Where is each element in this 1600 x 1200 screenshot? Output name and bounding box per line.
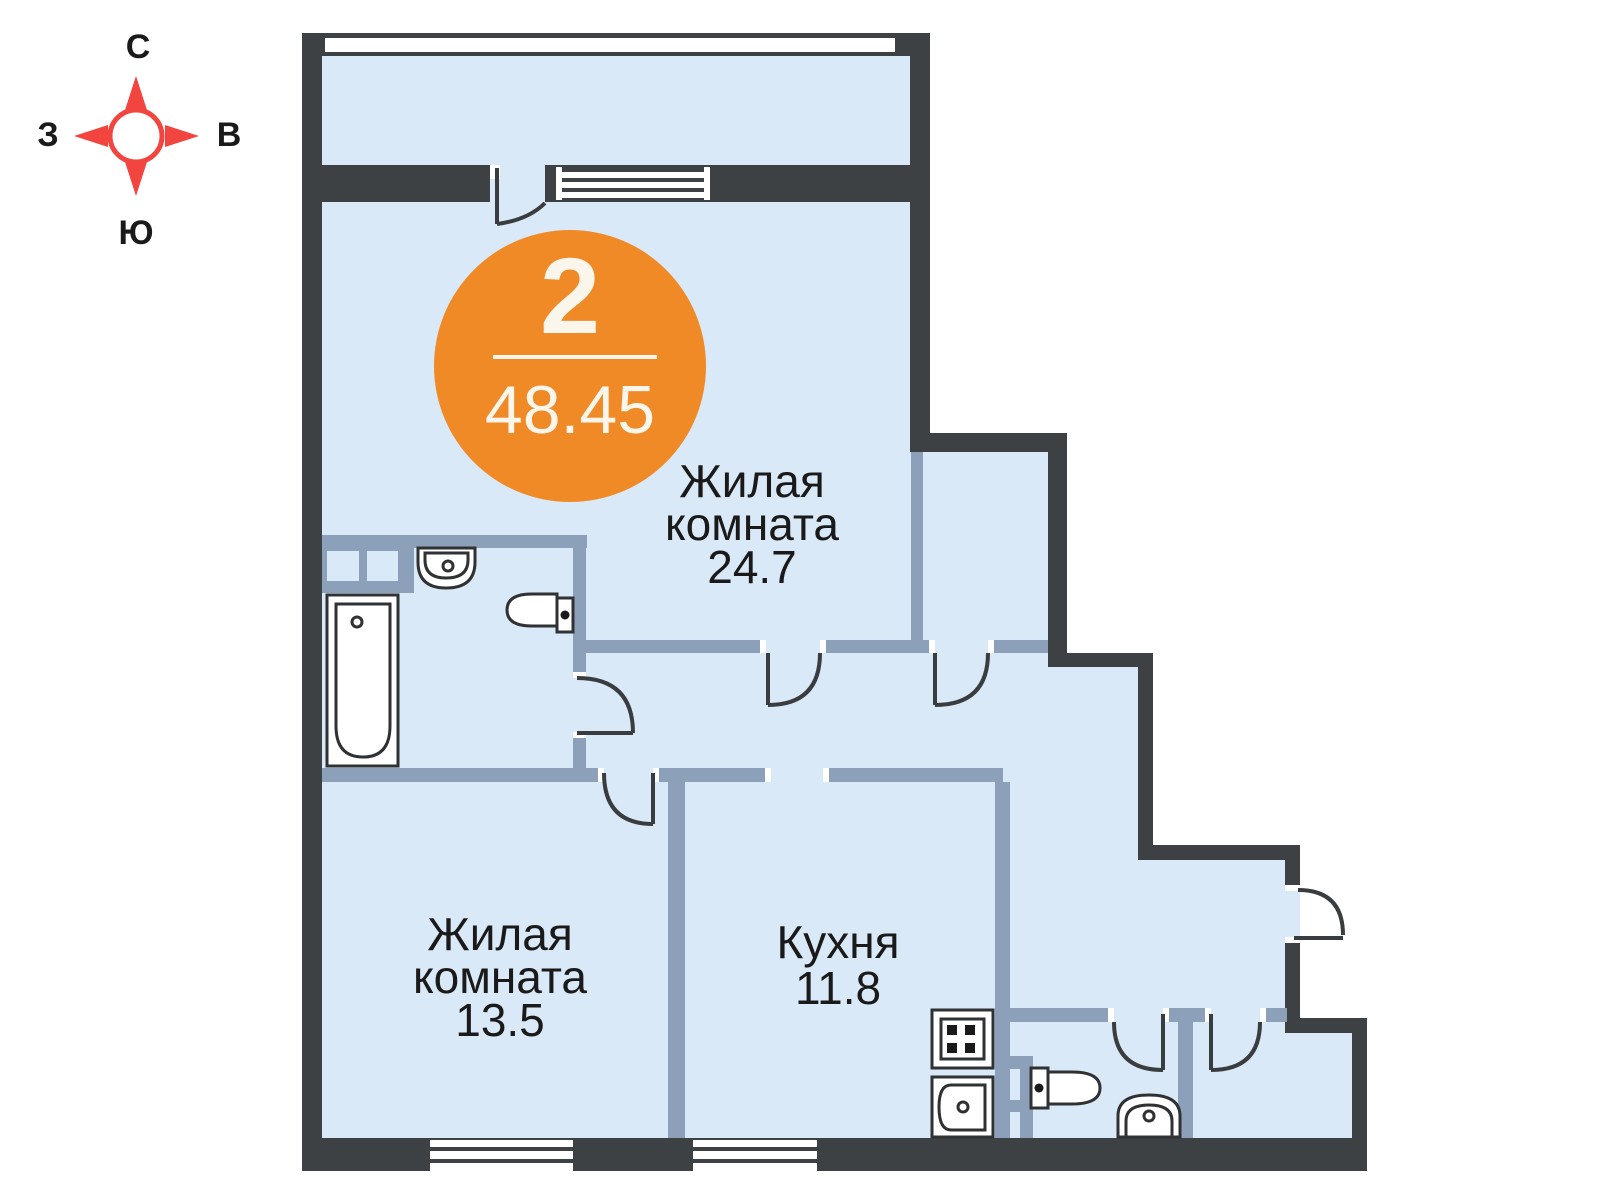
compass-south-pointer <box>125 162 147 196</box>
stove-icon <box>932 1010 993 1068</box>
compass-north-label: С <box>126 28 151 66</box>
bathtub-icon <box>327 595 398 766</box>
bathroom-sink-icon <box>418 548 475 588</box>
compass-west-label: З <box>37 116 58 154</box>
living2-area: 13.5 <box>455 994 545 1046</box>
floor-plan-page: С Ю З В <box>0 0 1600 1200</box>
compass-north-pointer <box>125 76 147 110</box>
compass-west-pointer <box>74 125 108 147</box>
compass-center-circle <box>110 110 162 162</box>
area-badge: 2 48.45 <box>434 230 706 502</box>
kitchen-name: Кухня <box>776 916 899 968</box>
compass-east-pointer <box>165 125 199 147</box>
window-kitchen <box>693 1140 817 1171</box>
kitchen-area: 11.8 <box>795 962 881 1014</box>
room-count: 2 <box>540 235 600 356</box>
total-area: 48.45 <box>485 372 655 448</box>
compass-south-label: Ю <box>118 214 153 252</box>
wc-toilet-icon <box>1031 1068 1100 1108</box>
floor-plan-canvas: С Ю З В <box>0 0 1600 1200</box>
balcony-facade-window <box>325 38 895 52</box>
living1-area: 24.7 <box>707 541 797 593</box>
kitchen-sink-icon <box>932 1077 993 1137</box>
wc-sink-icon <box>1118 1095 1180 1137</box>
compass-rose: С Ю З В <box>37 28 241 252</box>
compass-east-label: В <box>217 116 242 154</box>
window-living2 <box>430 1140 573 1171</box>
